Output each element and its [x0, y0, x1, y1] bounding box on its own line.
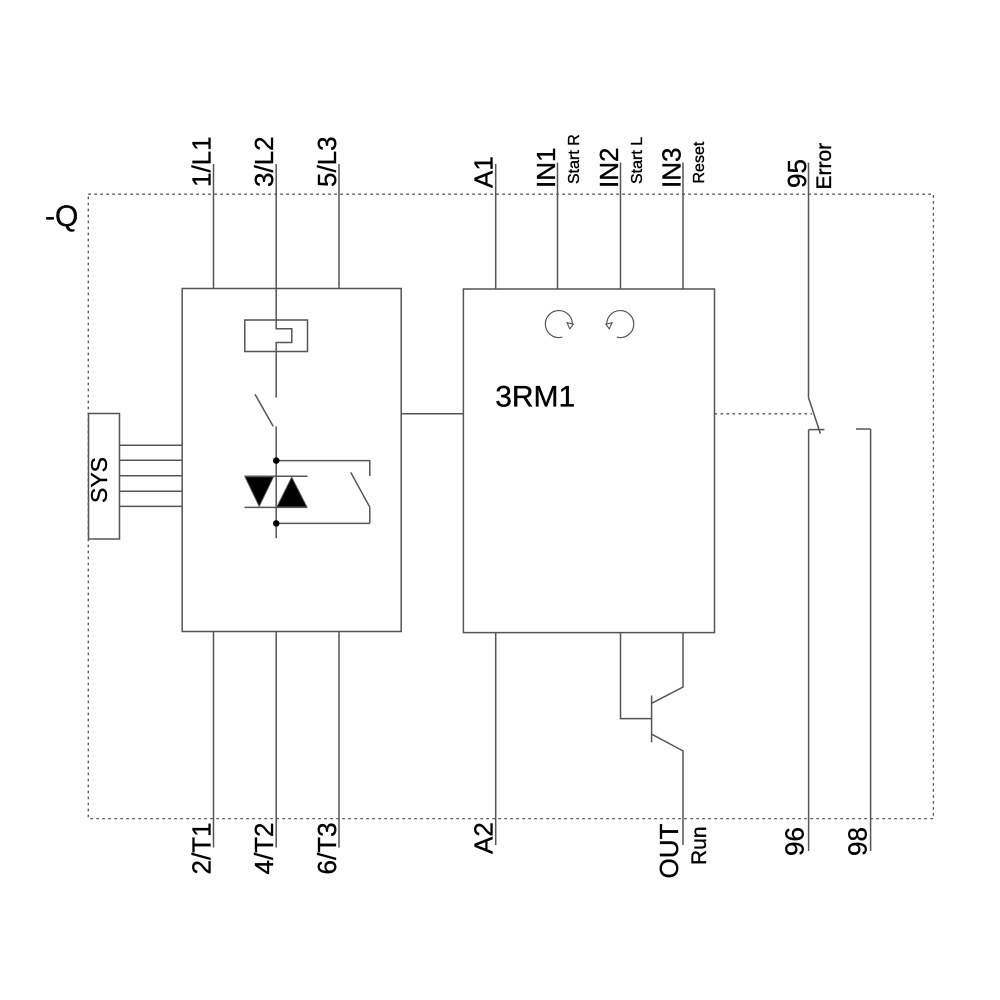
svg-text:3RM1: 3RM1: [495, 380, 575, 413]
svg-text:Start L: Start L: [629, 137, 646, 184]
svg-text:1/L1: 1/L1: [187, 136, 217, 187]
svg-text:5/L3: 5/L3: [312, 136, 342, 187]
svg-text:Reset: Reset: [691, 141, 708, 183]
svg-text:2/T1: 2/T1: [187, 822, 217, 874]
svg-text:3/L2: 3/L2: [249, 136, 279, 187]
svg-text:6/T3: 6/T3: [312, 822, 342, 874]
svg-text:Error: Error: [813, 143, 836, 190]
svg-text:Run: Run: [688, 826, 711, 865]
svg-text:Start R: Start R: [566, 134, 583, 184]
svg-text:-Q: -Q: [45, 200, 78, 233]
svg-text:96: 96: [780, 827, 810, 856]
svg-text:SYS: SYS: [86, 457, 112, 503]
svg-text:OUT: OUT: [654, 824, 684, 879]
svg-text:98: 98: [843, 827, 873, 856]
svg-text:95: 95: [782, 159, 812, 188]
svg-text:IN2: IN2: [594, 148, 624, 188]
svg-text:A2: A2: [469, 822, 499, 854]
svg-text:4/T2: 4/T2: [249, 822, 279, 874]
svg-text:IN3: IN3: [656, 148, 686, 188]
svg-text:IN1: IN1: [531, 148, 561, 188]
svg-text:A1: A1: [469, 156, 499, 188]
